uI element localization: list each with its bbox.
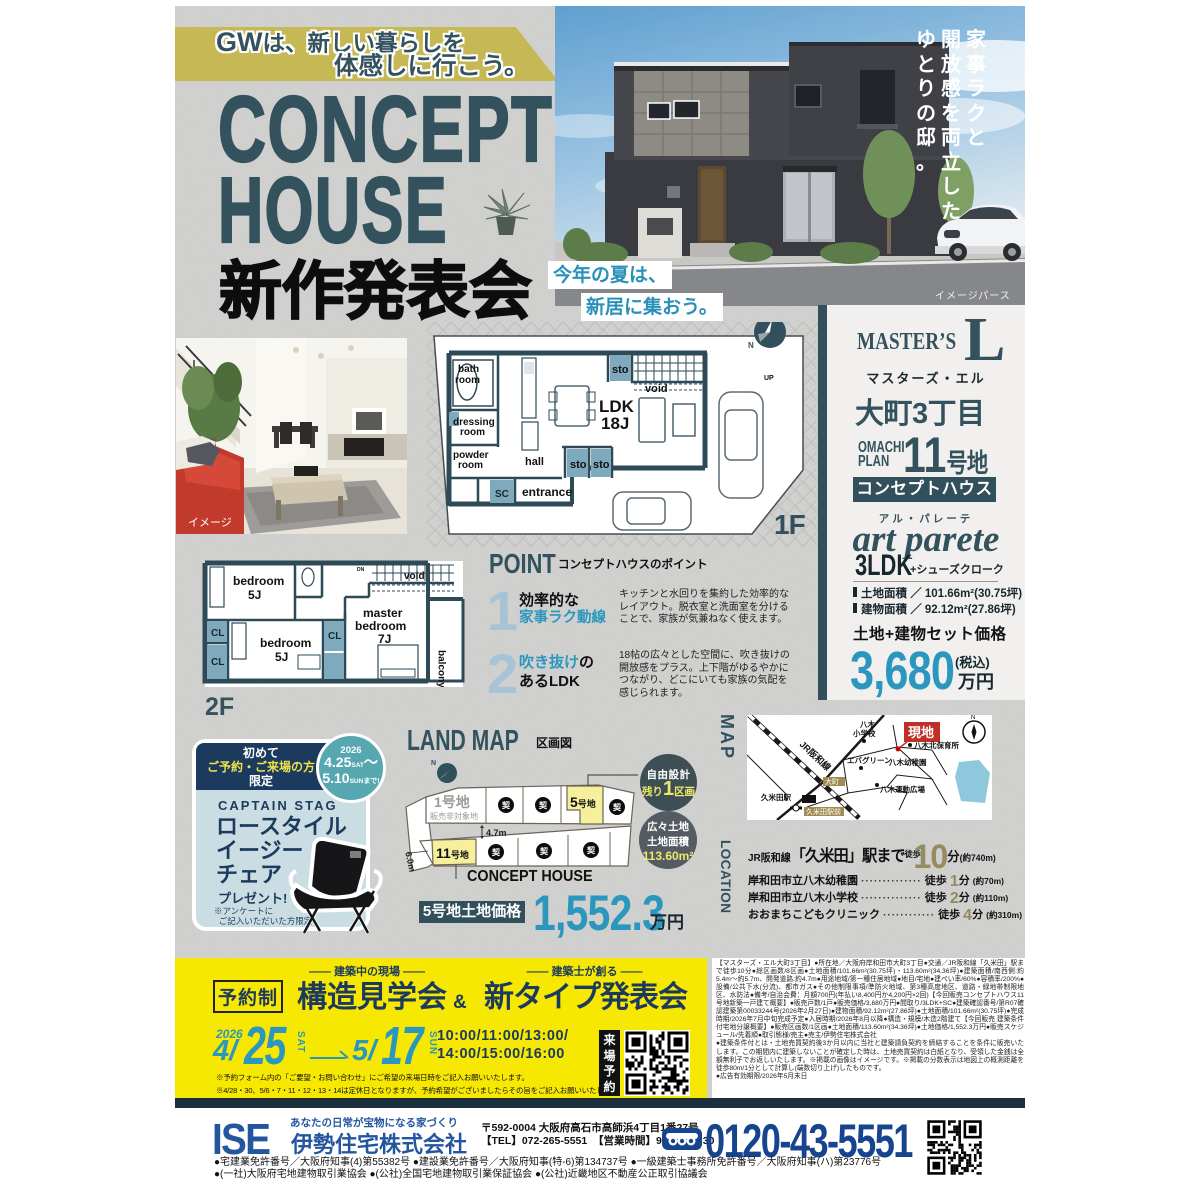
svg-text:1F: 1F (774, 509, 806, 540)
svg-text:bedroom: bedroom (233, 574, 284, 588)
svg-text:イメージ: イメージ (188, 517, 232, 529)
svg-text:八木運動広場: 八木運動広場 (879, 784, 925, 794)
svg-text:master: master (363, 606, 403, 620)
svg-text:CL: CL (328, 631, 341, 642)
svg-text:契: 契 (538, 800, 548, 810)
svg-text:sto: sto (570, 459, 587, 471)
svg-text:販売非対象地: 販売非対象地 (430, 811, 478, 821)
svg-text:sto: sto (593, 459, 610, 471)
svg-text:1号地: 1号地 (434, 794, 470, 810)
svg-text:久米田駅: 久米田駅 (760, 792, 791, 802)
svg-text:契: 契 (612, 802, 622, 812)
svg-text:bedroom: bedroom (260, 636, 311, 650)
svg-text:契: 契 (586, 845, 596, 855)
svg-text:18J: 18J (601, 414, 629, 433)
svg-text:契: 契 (491, 847, 501, 857)
svg-text:hall: hall (525, 456, 544, 468)
svg-text:契: 契 (501, 800, 511, 810)
svg-text:balcony: balcony (436, 650, 447, 687)
svg-text:小学校: 小学校 (853, 728, 876, 738)
svg-text:room: room (458, 460, 483, 471)
svg-text:entrance: entrance (522, 485, 572, 499)
svg-text:5J: 5J (248, 588, 261, 602)
svg-text:4.7m: 4.7m (486, 828, 507, 838)
svg-text:DN: DN (357, 567, 365, 573)
svg-text:room: room (460, 427, 485, 438)
svg-text:UP: UP (764, 375, 774, 382)
svg-text:void: void (404, 571, 425, 582)
svg-text:CL: CL (211, 657, 224, 668)
svg-text:八木北保育所: 八木北保育所 (913, 740, 959, 750)
svg-text:5J: 5J (275, 650, 288, 664)
svg-text:八木幼稚園: 八木幼稚園 (888, 757, 927, 767)
svg-text:八木: 八木 (859, 719, 875, 729)
svg-text:void: void (645, 383, 668, 395)
svg-text:bath: bath (458, 364, 479, 375)
svg-text:sto: sto (612, 364, 629, 376)
svg-text:契: 契 (539, 846, 549, 856)
svg-text:大町: 大町 (825, 777, 839, 786)
svg-text:CL: CL (211, 628, 224, 639)
svg-text:room: room (455, 375, 480, 386)
svg-text:bedroom: bedroom (355, 619, 406, 633)
svg-text:エバグリーン: エバグリーン (847, 755, 892, 765)
svg-text:現地: 現地 (908, 725, 934, 740)
svg-text:久米田駅前: 久米田駅前 (806, 807, 841, 816)
svg-text:N: N (748, 341, 754, 350)
svg-text:N: N (971, 715, 975, 721)
svg-text:7J: 7J (378, 632, 391, 646)
svg-text:N: N (431, 760, 436, 767)
svg-text:SC: SC (495, 489, 509, 500)
